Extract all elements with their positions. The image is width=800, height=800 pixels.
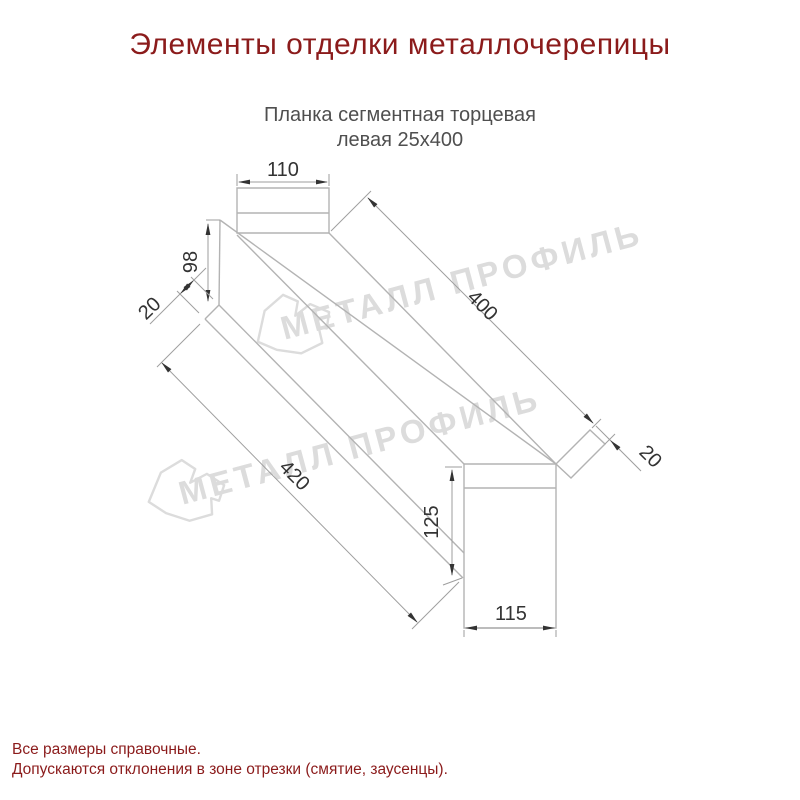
dimension-end-height: 125	[421, 467, 462, 585]
extension-line	[157, 324, 200, 367]
dimension-label: 20	[635, 441, 666, 472]
dimension-bottom-width: 115	[464, 603, 556, 637]
left-end-top-corner-edge	[219, 220, 220, 305]
product-drawing-page: { "page": { "title": "Элементы отделки м…	[0, 0, 800, 800]
dimension-label: 98	[180, 251, 202, 273]
dimension-label: 20	[134, 293, 165, 324]
dimension-arrow	[181, 286, 188, 293]
extension-line	[443, 578, 462, 585]
left-fold-edge	[205, 305, 219, 319]
dimension-left-height: 98	[180, 220, 220, 301]
dimension-label: 110	[267, 159, 299, 181]
dimension-left-fold: 20	[134, 268, 213, 324]
dimension-label: 115	[495, 603, 527, 625]
footer-note-line1: Все размеры справочные.	[12, 740, 448, 760]
footer-notes: Все размеры справочные. Допускаются откл…	[12, 740, 448, 780]
top-cap-face	[237, 188, 329, 233]
watermark-text: МЕТАЛЛ ПРОФИЛЬ	[175, 379, 545, 511]
extension-line	[412, 582, 459, 629]
extension-line	[605, 434, 615, 444]
extension-line	[331, 191, 371, 231]
watermark-text: МЕТАЛЛ ПРОФИЛЬ	[277, 214, 647, 346]
dimension-arrow	[611, 441, 620, 450]
dimension-top-width: 110	[237, 159, 329, 186]
dimension-right-fold: 20	[596, 426, 666, 472]
right-fold-face	[556, 430, 605, 478]
technical-drawing: МЕТАЛЛ ПРОФИЛЬ МЕТАЛЛ ПРОФИЛЬ 110 98	[0, 0, 800, 800]
footer-note-line2: Допускаются отклонения в зоне отрезки (с…	[12, 760, 448, 780]
dimension-label: 125	[421, 505, 443, 538]
